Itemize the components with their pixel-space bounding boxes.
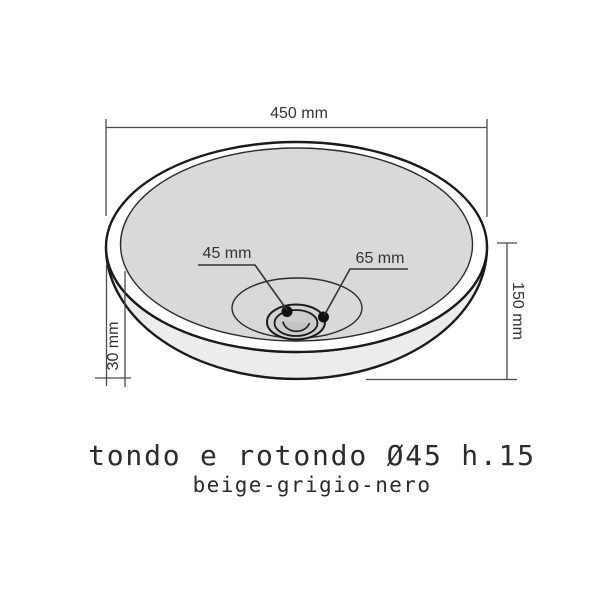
dim-label-width: 450 mm	[270, 106, 328, 122]
dim-label-height: 150 mm	[509, 282, 525, 340]
drain-dim-dot-inner	[282, 306, 293, 317]
drain-dim-dot-outer	[318, 312, 329, 323]
product-title: tondo e rotondo Ø45 h.15	[88, 441, 536, 471]
dim-label-drain-inner: 45 mm	[203, 246, 252, 262]
technical-drawing-canvas: 450 mm 45 mm 65 mm 150 mm 30 mm tondo e …	[0, 0, 600, 600]
product-colors-subtitle: beige-grigio-nero	[193, 473, 432, 497]
dim-label-drain-outer: 65 mm	[356, 251, 405, 267]
dim-label-rim: 30 mm	[106, 322, 122, 371]
